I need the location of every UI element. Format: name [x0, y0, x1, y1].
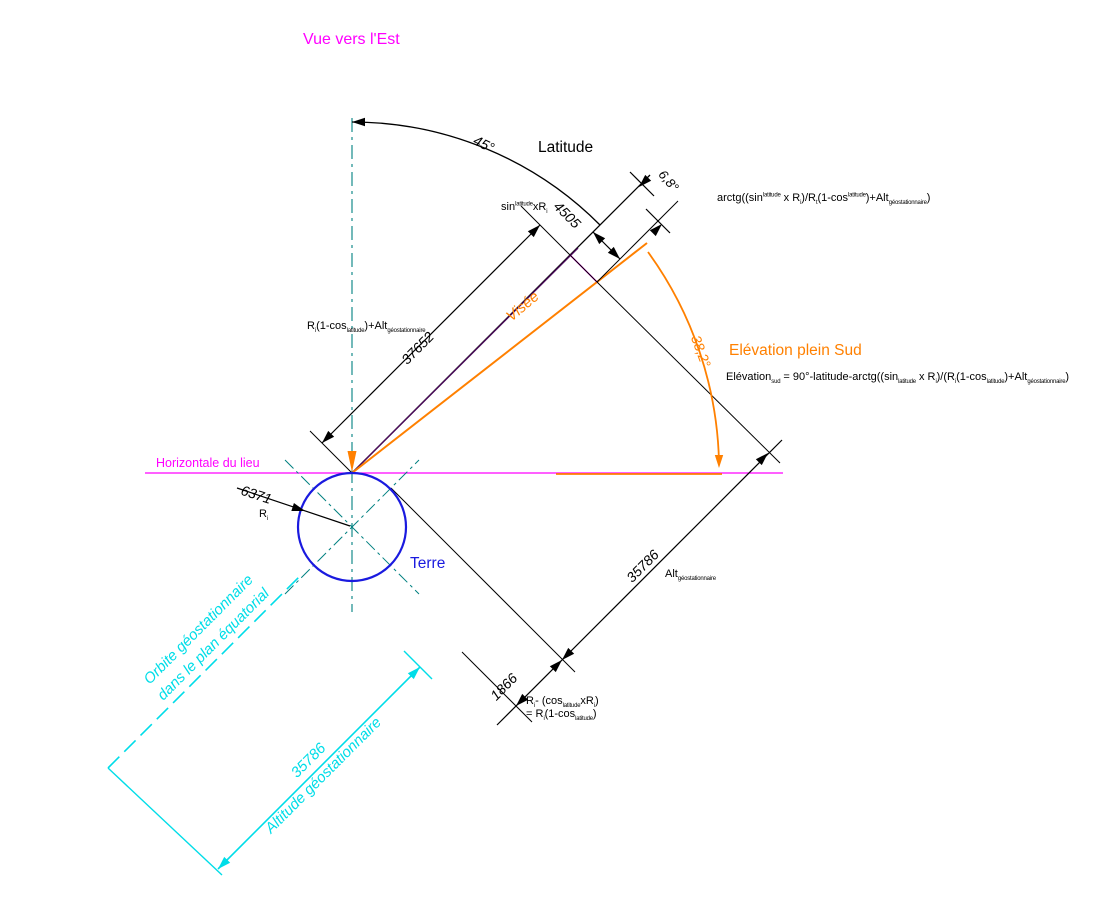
cyan-extension-tick	[404, 651, 432, 679]
geostationary-elevation-diagram: Vue vers l'Est 45° Latitude 6,8° arctg((…	[0, 0, 1120, 897]
orbit-plane-line	[108, 573, 303, 768]
latitude-label: Latitude	[538, 139, 593, 157]
cyan-extension-line	[108, 768, 222, 875]
total-distance-label: Ri(1-coslatitude)+Altgéostationnaire	[307, 320, 425, 332]
arctg-formula: arctg((sinlatitude x Ri)/Rt(1-coslatitud…	[717, 192, 930, 204]
geo-altitude-label: Altgéostationnaire	[665, 568, 716, 580]
dimension-chain-line	[497, 440, 782, 725]
extension-surface-downright	[391, 488, 575, 672]
arrow-latitude-arc	[352, 118, 365, 126]
view-title: Vue vers l'Est	[303, 31, 400, 49]
earth-label: Terre	[410, 555, 445, 573]
radial-offset-formula-2: = Ri(1-coslatitude)	[526, 708, 597, 720]
line-of-sight	[352, 243, 647, 473]
arrow-elevation-arc	[715, 455, 723, 468]
sight-origin-arrow	[348, 451, 357, 472]
diagram-linework	[0, 0, 1120, 897]
sight-construction-line	[352, 248, 578, 473]
elevation-title: Elévation plein Sud	[729, 342, 862, 360]
arrow-68-a	[636, 175, 651, 190]
radial-offset-formula-1: Ri- (coslatitudexRi)	[526, 695, 599, 707]
sin-offset-label: sinlatitudexRi	[501, 201, 547, 213]
horizontal-label: Horizontale du lieu	[156, 456, 260, 470]
extension-satellite-upright	[597, 201, 678, 282]
arrow-68-b	[650, 221, 665, 236]
elevation-formula: Elévationsud = 90°-latitude-arctg((sinla…	[726, 371, 1069, 383]
earth-radius-symbol: Ri	[259, 508, 268, 520]
